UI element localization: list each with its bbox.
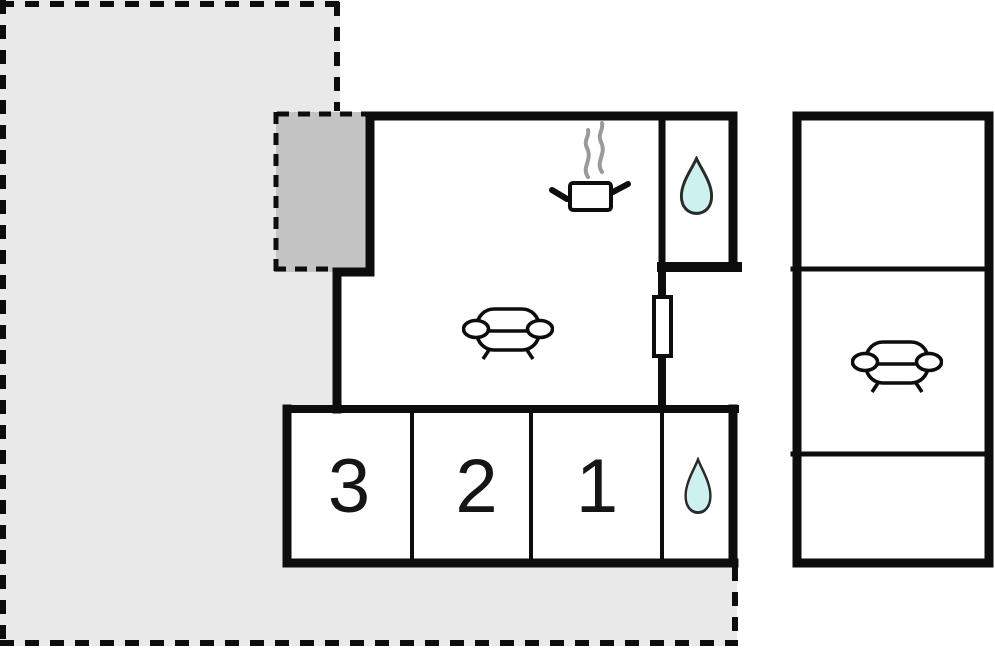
annex-house xyxy=(793,116,989,563)
floor-plan: 3 2 1 xyxy=(0,0,995,652)
covered-patio-patch xyxy=(274,112,372,272)
window-door-symbol xyxy=(654,297,671,356)
